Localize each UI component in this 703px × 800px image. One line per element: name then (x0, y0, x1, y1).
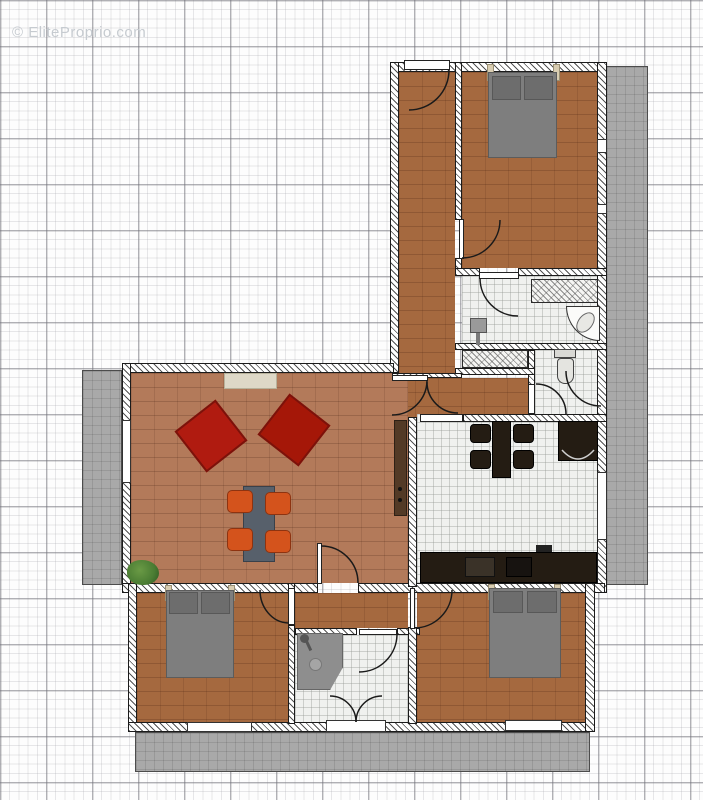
balcony-right (606, 66, 648, 585)
wall (455, 368, 535, 375)
window-bedroom-top (597, 139, 607, 153)
wall (288, 625, 295, 724)
watermark: © EliteProprio.com (12, 24, 146, 41)
door-handle-dot (398, 498, 402, 502)
floor-entrance-corridor (399, 72, 455, 378)
door-leaf-bedroom-top (459, 219, 464, 259)
french-door-frame (326, 720, 386, 732)
wall (585, 583, 595, 732)
sink-pedestal-stem (476, 333, 480, 345)
wall (455, 268, 480, 276)
balcony-left (82, 370, 122, 585)
orange-chair (265, 530, 291, 553)
wall (518, 268, 607, 276)
kitchen-chair (470, 450, 491, 469)
wall-closet-bathroom (531, 279, 598, 303)
window-bedroom-top-2 (597, 204, 607, 214)
counter-hob (506, 557, 532, 577)
kitchen-passage-threshold (420, 414, 463, 422)
orange-chair (227, 490, 253, 513)
entrance-door-leaf (404, 60, 450, 70)
wall (408, 417, 417, 587)
door-opening-wc (528, 384, 535, 414)
toilet-tank (554, 349, 576, 358)
kitchen-chair (513, 424, 534, 443)
door-leaf-bathroom-top (479, 272, 519, 279)
orange-chair (227, 528, 253, 551)
fridge (558, 421, 598, 461)
faucet (536, 545, 552, 552)
pillow (527, 591, 557, 613)
door-leaf-living (317, 543, 322, 584)
wall-closet-hall (462, 350, 528, 368)
plant (127, 560, 159, 585)
pedestal-sink (470, 318, 487, 333)
window-living-left (122, 420, 131, 483)
door-leaf-bedroom-br (410, 588, 415, 629)
pillow (493, 591, 523, 613)
wall (358, 583, 605, 593)
orange-chair (265, 492, 291, 515)
wall (408, 627, 417, 724)
wall (455, 62, 462, 220)
pillow (524, 76, 553, 100)
pillow (201, 592, 230, 614)
pillow (492, 76, 521, 100)
kitchen-table (492, 421, 511, 478)
window-bedroom-bottom-left (187, 722, 252, 732)
kitchen-chair (470, 424, 491, 443)
wall (128, 583, 137, 732)
shower-drain (309, 658, 322, 671)
counter-sink (465, 557, 495, 577)
door-leaf-shower-room (359, 629, 397, 635)
kitchen-chair (513, 450, 534, 469)
sideboard (224, 373, 277, 389)
door-leaf-hall (392, 375, 428, 381)
floor-plan-canvas: © EliteProprio.com (0, 0, 703, 800)
terrace-bottom (135, 732, 590, 772)
wall (122, 363, 394, 373)
wall (390, 62, 399, 373)
door-handle-dot (398, 487, 402, 491)
balcony-door-kitchen (597, 472, 607, 540)
toilet-bowl (557, 358, 574, 384)
floor-hallway-south (295, 593, 408, 628)
door-opening-bedroom-bl (288, 588, 295, 625)
pillow (169, 592, 198, 614)
window-bedroom-bottom-right (505, 720, 562, 731)
